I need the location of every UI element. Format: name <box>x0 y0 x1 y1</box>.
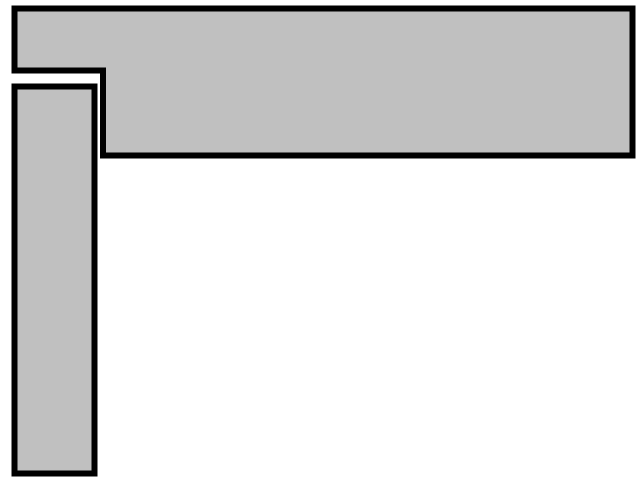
drawing-canvas <box>0 0 640 480</box>
horizontal-bar-shape <box>15 9 633 156</box>
vertical-bar-shape <box>15 87 95 474</box>
l-square-figure <box>0 0 640 480</box>
